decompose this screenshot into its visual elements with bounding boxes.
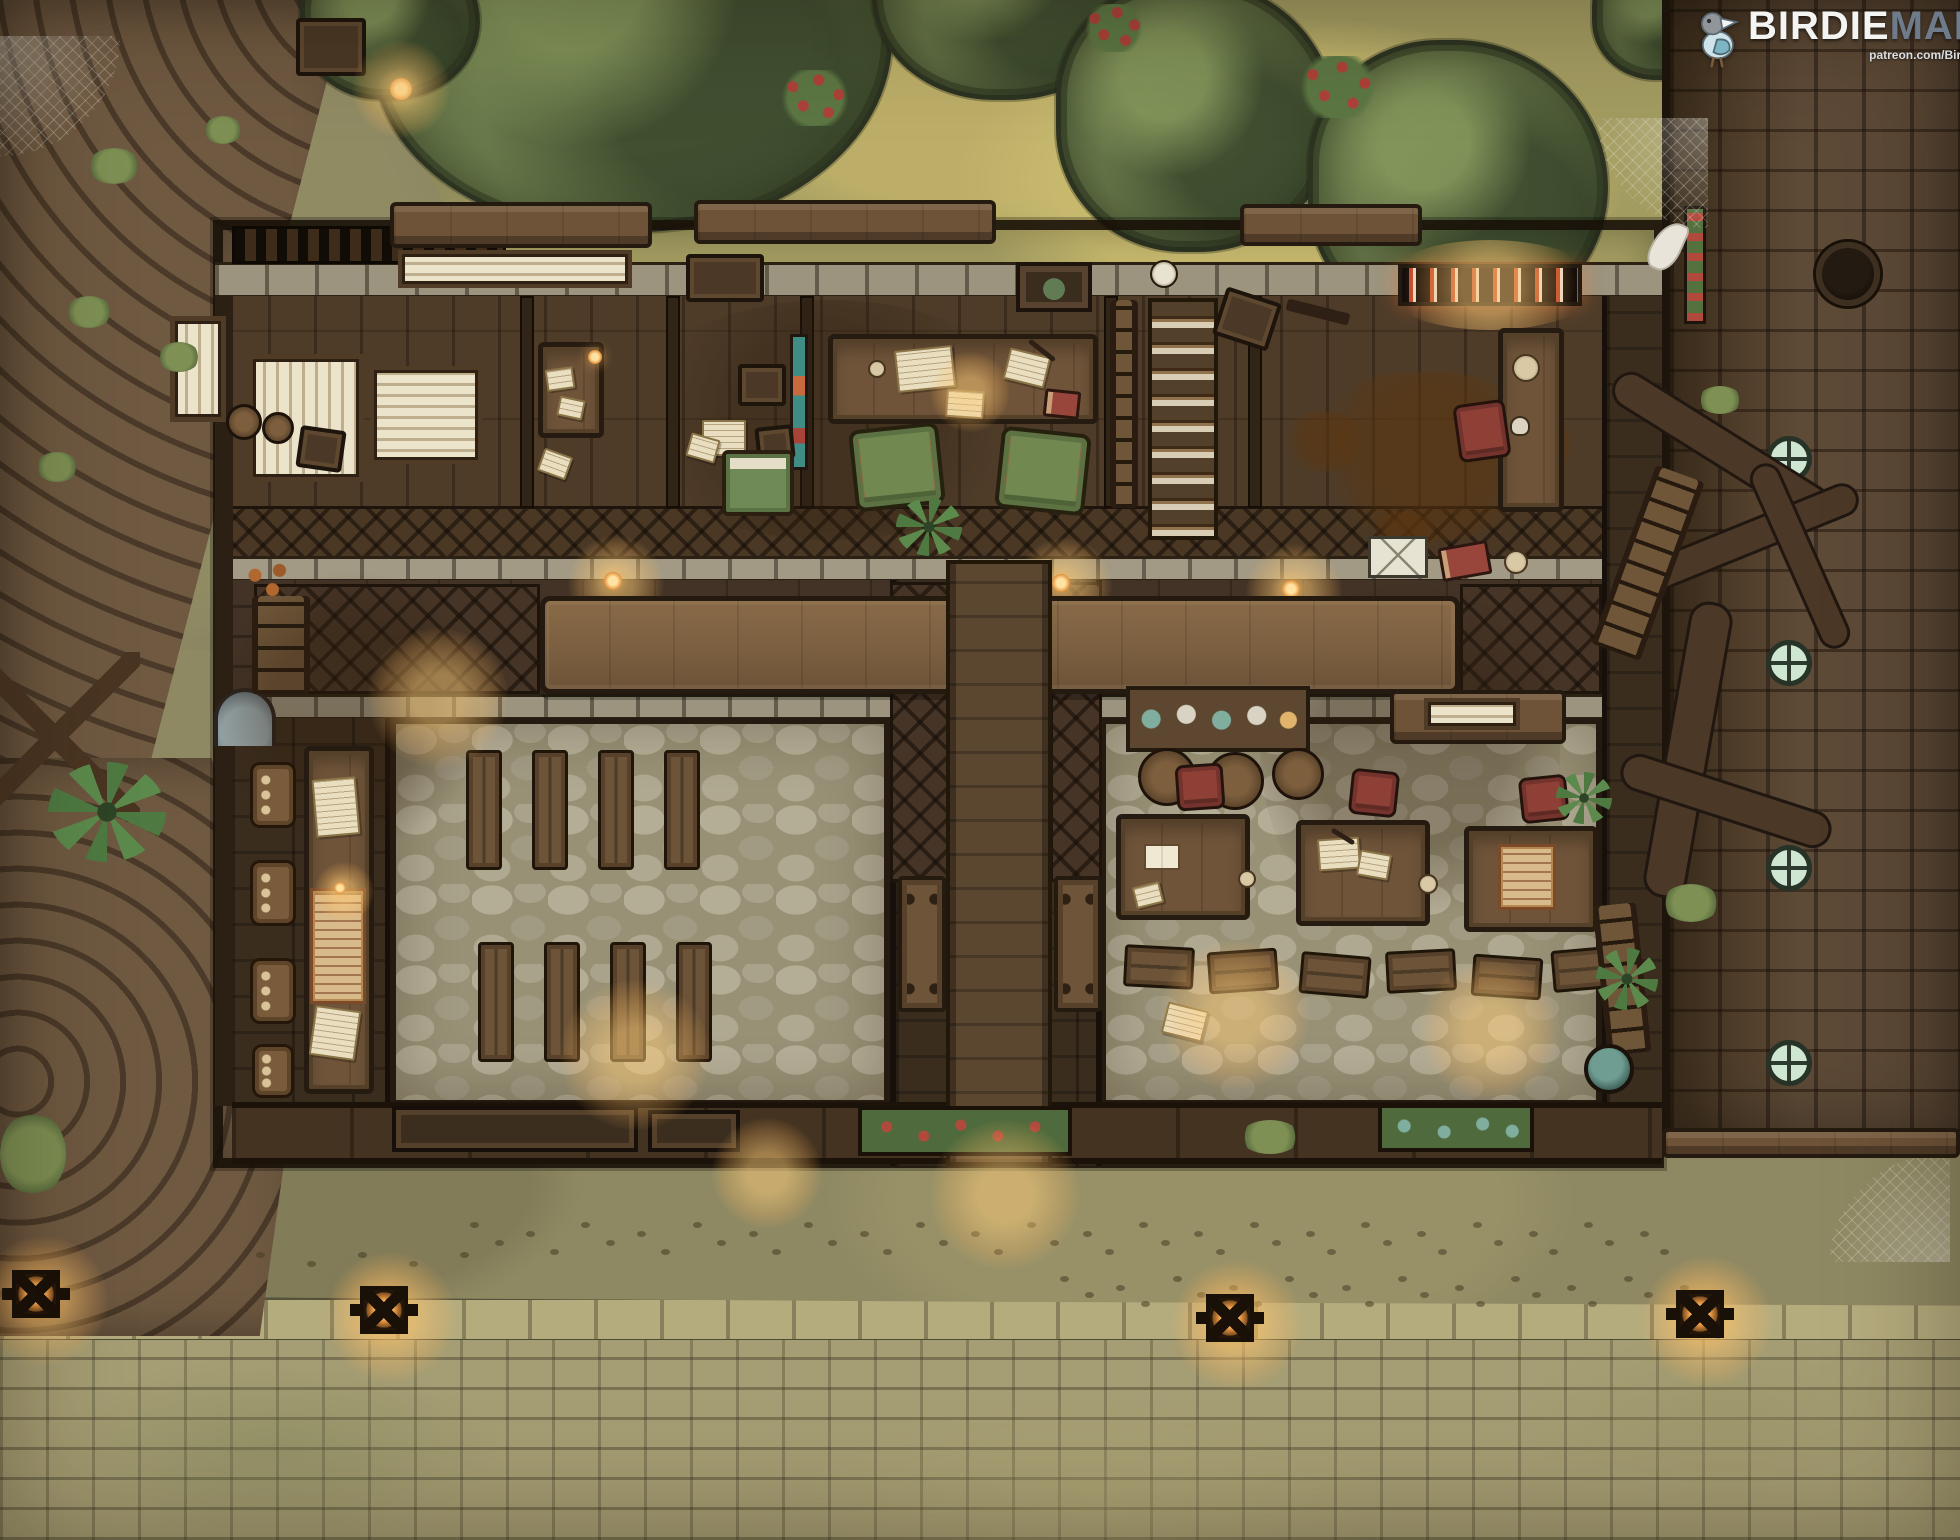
cobblestone-street bbox=[0, 1340, 1960, 1540]
north-stone-wall bbox=[215, 262, 1662, 298]
footprint bbox=[1417, 1231, 1426, 1237]
footprint bbox=[1309, 1292, 1318, 1298]
footprint bbox=[749, 1231, 758, 1237]
footprint bbox=[1173, 1276, 1182, 1282]
footprint bbox=[470, 1222, 479, 1228]
footprint bbox=[1272, 1240, 1281, 1246]
footprint bbox=[1438, 1249, 1447, 1255]
entrance-vestibule bbox=[890, 580, 1102, 1166]
footprint bbox=[693, 1222, 702, 1228]
street-curb bbox=[0, 1296, 1960, 1344]
footprint bbox=[1567, 1285, 1576, 1291]
footprint bbox=[860, 1231, 869, 1237]
clerk-platform bbox=[232, 718, 390, 1106]
footprint bbox=[637, 1231, 646, 1237]
birdiemaps-logo: BIRDIEMAPS patreon.com/BirdieMaps bbox=[1690, 6, 1952, 84]
footprint bbox=[883, 1249, 892, 1255]
footprint bbox=[606, 1240, 615, 1246]
footprint bbox=[495, 1240, 504, 1246]
footprint bbox=[1584, 1222, 1593, 1228]
footprint bbox=[1420, 1292, 1429, 1298]
footprint bbox=[1644, 1292, 1653, 1298]
logo-url: patreon.com/BirdieMaps bbox=[1748, 49, 1960, 61]
footprint bbox=[1116, 1285, 1125, 1291]
footprint bbox=[828, 1240, 837, 1246]
footprint bbox=[358, 1252, 367, 1258]
footprint bbox=[1327, 1249, 1336, 1255]
footprint bbox=[971, 1231, 980, 1237]
upper-floor-rooms bbox=[222, 296, 1662, 508]
footprint bbox=[1624, 1276, 1633, 1282]
footprint bbox=[1680, 1285, 1689, 1291]
roof-east bbox=[1662, 0, 1960, 1132]
logo-text-secondary: MAPS bbox=[1890, 4, 1960, 48]
logo-text-primary: BIRDIE bbox=[1748, 4, 1890, 48]
footprint bbox=[1083, 1231, 1092, 1237]
footprint bbox=[1197, 1292, 1206, 1298]
footprint bbox=[1455, 1285, 1464, 1291]
footprint bbox=[460, 1252, 469, 1258]
footprint bbox=[1060, 1276, 1069, 1282]
cobweb bbox=[1830, 1152, 1950, 1262]
footprint bbox=[1473, 1222, 1482, 1228]
logo-text: BIRDIEMAPS patreon.com/BirdieMaps bbox=[1748, 6, 1960, 61]
footprint bbox=[1216, 1249, 1225, 1255]
footprint bbox=[1529, 1231, 1538, 1237]
footprint bbox=[1361, 1222, 1370, 1228]
footprint bbox=[1494, 1240, 1503, 1246]
footprint bbox=[994, 1249, 1003, 1255]
footprint bbox=[1229, 1285, 1238, 1291]
footprint bbox=[1250, 1222, 1259, 1228]
footprint bbox=[1549, 1249, 1558, 1255]
bird-icon bbox=[1690, 6, 1744, 68]
footprint bbox=[1139, 1222, 1148, 1228]
footprint bbox=[307, 1261, 316, 1267]
map-canvas: BIRDIEMAPS patreon.com/BirdieMaps bbox=[0, 0, 1960, 1540]
stone-course-upper bbox=[222, 556, 1662, 582]
bench-hall-floor bbox=[390, 718, 890, 1106]
footprint bbox=[1640, 1231, 1649, 1237]
footprint bbox=[661, 1249, 670, 1255]
roof-eave bbox=[1662, 1128, 1960, 1158]
footprint bbox=[772, 1249, 781, 1255]
footprint bbox=[1383, 1240, 1392, 1246]
footprint bbox=[939, 1240, 948, 1246]
footprint bbox=[526, 1231, 535, 1237]
footprint bbox=[804, 1222, 813, 1228]
footprint bbox=[1342, 1285, 1351, 1291]
scribe-hall-floor bbox=[1100, 718, 1602, 1106]
footprint bbox=[1050, 1240, 1059, 1246]
footprint bbox=[1161, 1240, 1170, 1246]
footprint bbox=[916, 1222, 925, 1228]
footprint bbox=[1660, 1249, 1669, 1255]
south-wall bbox=[232, 1102, 1662, 1164]
footprint bbox=[581, 1222, 590, 1228]
footprint bbox=[1511, 1276, 1520, 1282]
balcony-railing bbox=[222, 506, 1662, 558]
footprint bbox=[1194, 1231, 1203, 1237]
footprint bbox=[717, 1240, 726, 1246]
footprint bbox=[1105, 1249, 1114, 1255]
footprint bbox=[1398, 1276, 1407, 1282]
east-wall-walk bbox=[1602, 296, 1662, 1106]
footprint bbox=[550, 1249, 559, 1255]
footprint bbox=[1085, 1292, 1094, 1298]
footprint bbox=[409, 1261, 418, 1267]
footprint bbox=[1027, 1222, 1036, 1228]
footprint bbox=[1605, 1240, 1614, 1246]
footprint bbox=[1532, 1292, 1541, 1298]
footprint bbox=[1306, 1231, 1315, 1237]
west-wall bbox=[215, 296, 233, 1106]
footprint bbox=[1285, 1276, 1294, 1282]
